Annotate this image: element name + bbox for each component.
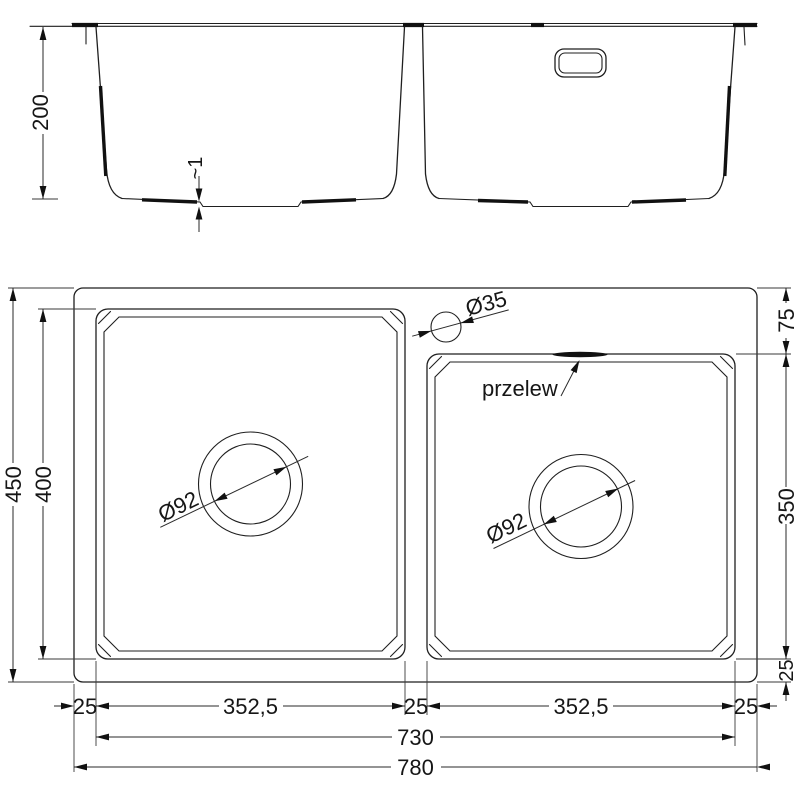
dim-right-bottom-offset-label: 25 [776, 659, 798, 681]
right-bowl-section [439, 27, 735, 207]
dim-depth-label: 200 [28, 94, 53, 131]
sink-outline [74, 288, 757, 682]
dim-tap-hole-label: Ø35 [463, 286, 510, 321]
dim-drain-left-label: Ø92 [154, 486, 202, 527]
dimension-drain-right: Ø92 [482, 481, 635, 549]
dim-bowls-span-label: 730 [397, 725, 434, 750]
dim-overall-depth-label: 450 [1, 466, 26, 503]
clip-pin-right [744, 27, 745, 45]
dim-middle-gap-label: 25 [404, 694, 428, 719]
dimension-bottom-chains: 25 352,5 25 352,5 25 730 [54, 661, 777, 780]
sink-technical-drawing-page: 200 ~1 [0, 0, 800, 800]
dim-right-edge-label: 25 [734, 694, 758, 719]
dim-right-bowl-depth-label: 350 [774, 488, 799, 525]
overflow-label: przelew [482, 376, 558, 401]
center-divider-section [383, 27, 439, 199]
dim-left-edge-label: 25 [73, 694, 97, 719]
dim-bottom-step-label: ~1 [185, 157, 207, 180]
dim-right-bowl-width-label: 352,5 [553, 694, 608, 719]
dimension-depth-200: 200 [28, 27, 58, 199]
dimension-right-offsets: 75 350 25 [736, 288, 799, 701]
technical-drawing: 200 ~1 [0, 0, 800, 800]
dim-left-bowl-width-label: 352,5 [223, 694, 278, 719]
right-bowl-plan [427, 352, 735, 659]
front-section-view: 200 ~1 [28, 24, 757, 233]
dimension-drain-left: Ø92 [154, 456, 308, 527]
overflow-callout: przelew [482, 360, 580, 401]
dim-left-bowl-depth-label: 400 [31, 466, 56, 503]
overflow-slot [553, 352, 608, 357]
left-bowl-section [96, 27, 383, 207]
dimension-tap-hole: Ø35 [412, 286, 509, 342]
dimension-bottom-step: ~1 [185, 157, 207, 232]
dimension-left-bowl-depth-400: 400 [31, 309, 96, 659]
dim-overall-width-label: 780 [397, 755, 434, 780]
plan-view: Ø35 przelew Ø92 Ø92 [1, 286, 799, 780]
dim-right-top-offset-label: 75 [774, 308, 799, 332]
